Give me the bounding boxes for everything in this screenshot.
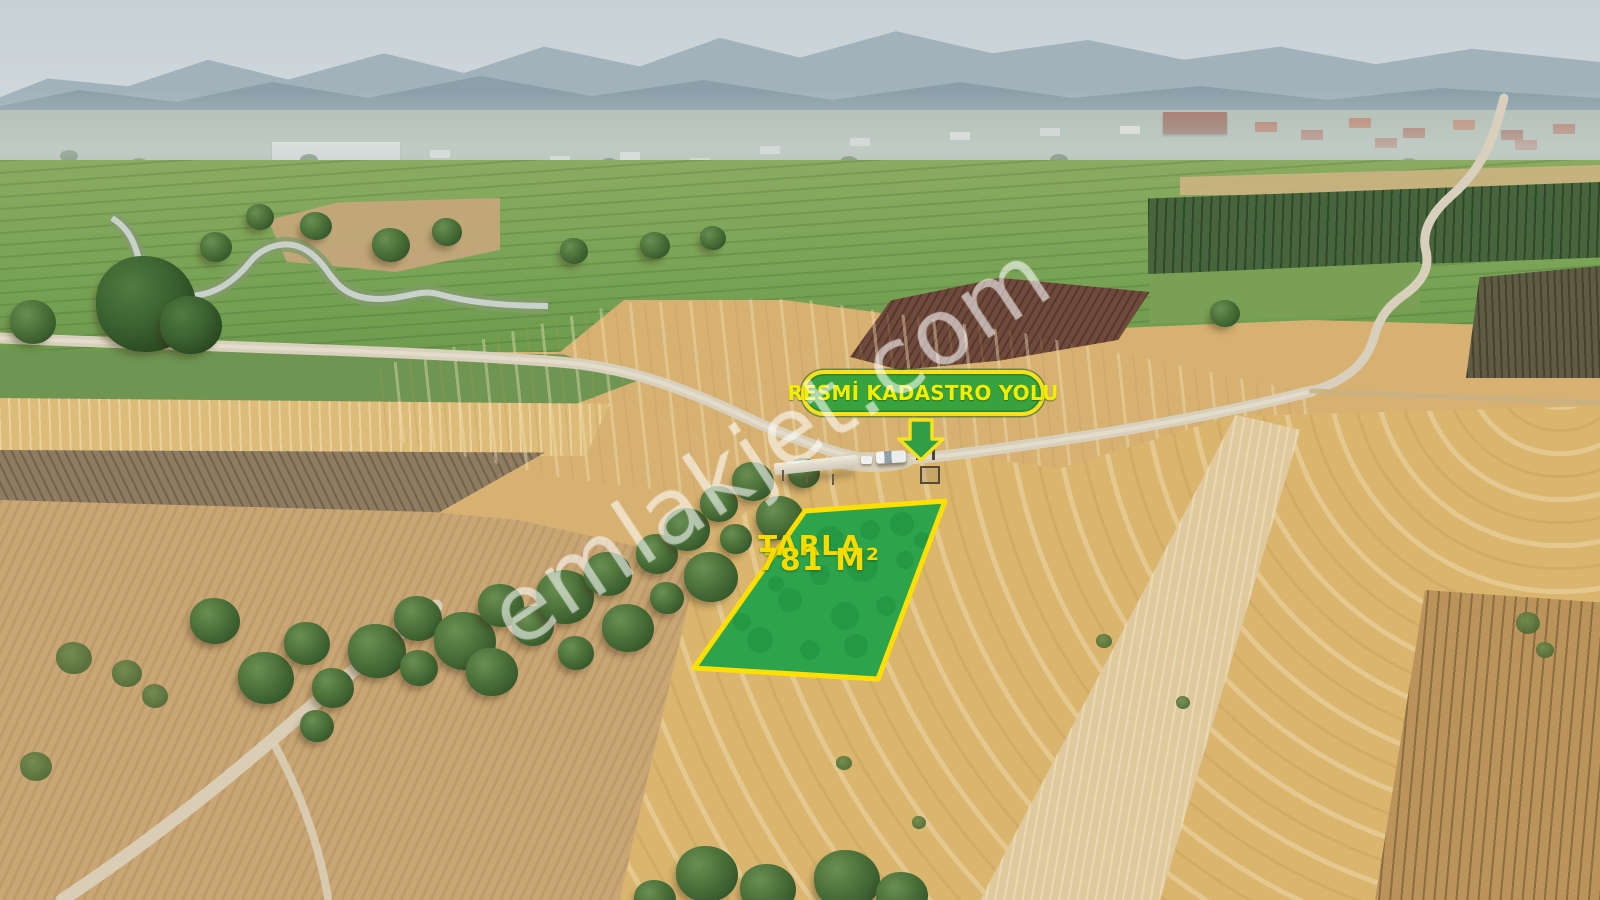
down-arrow-icon [899, 420, 943, 460]
aerial-land-photo: TARLA 781 M² RESMİ KADASTRO YOLU emlakje… [0, 0, 1600, 900]
parcel-area-text: 781 M² [758, 546, 880, 576]
